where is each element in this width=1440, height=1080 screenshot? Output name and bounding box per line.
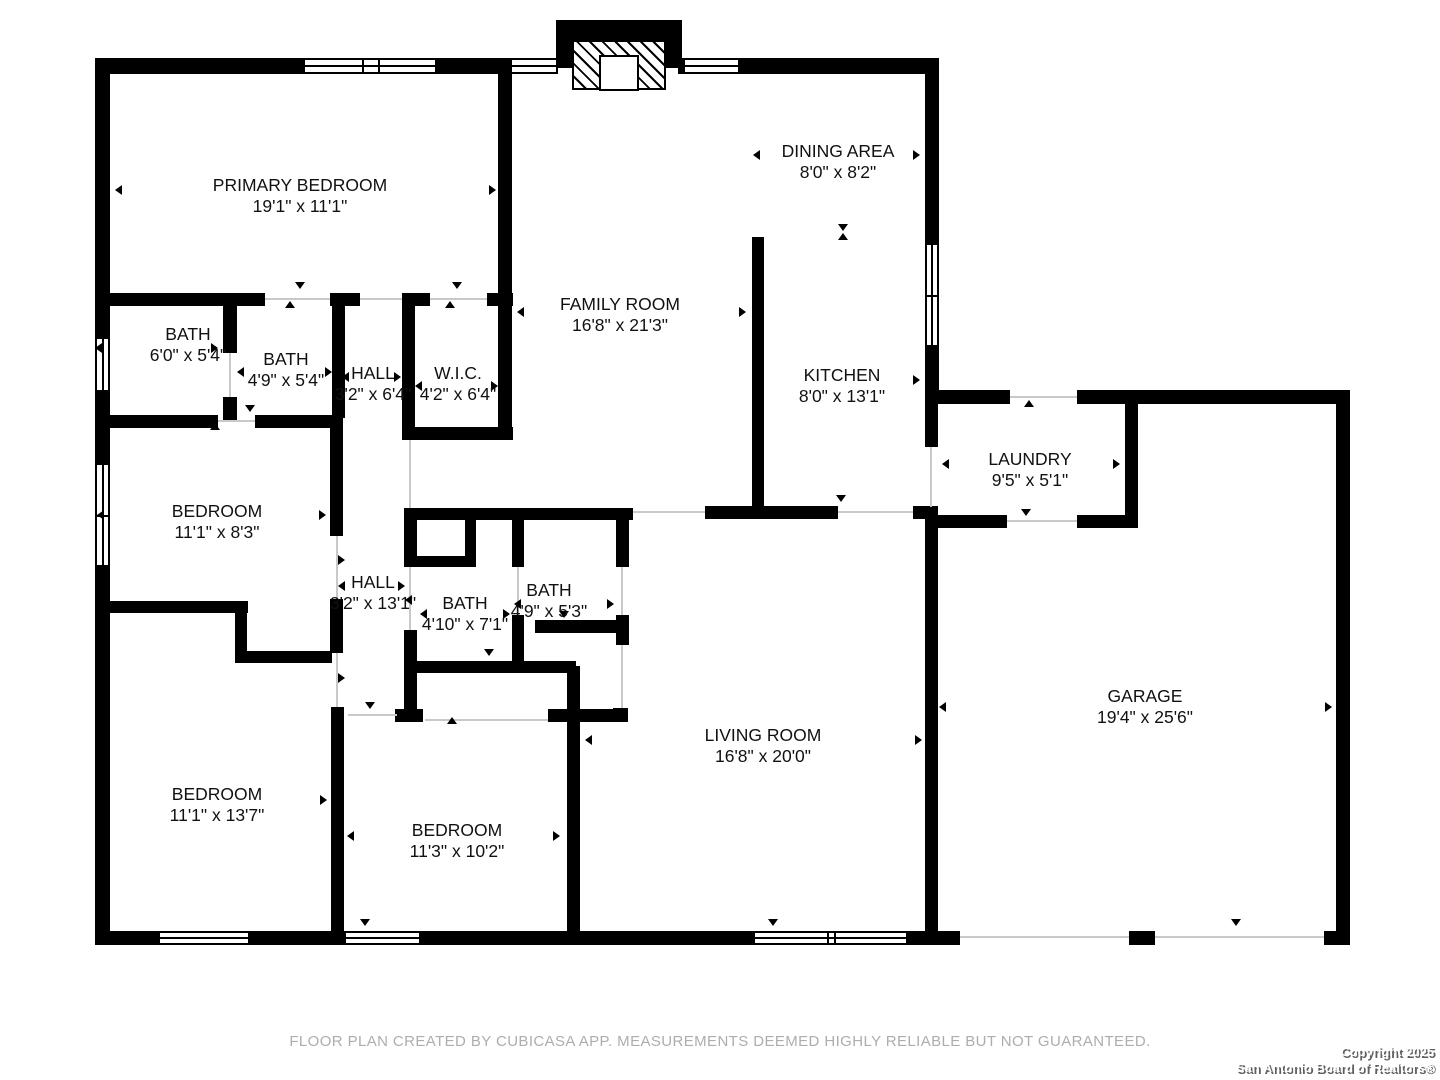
room-label-bath-2: BATH4'9" x 5'4" <box>248 349 325 391</box>
opening-marker <box>365 702 375 709</box>
room-name: LIVING ROOM <box>705 725 822 746</box>
room-label-hall: HALL3'2" x 6'4" <box>335 363 412 405</box>
window-center-line <box>685 65 738 67</box>
room-dimensions: 4'10" x 7'1" <box>422 614 508 635</box>
opening-marker <box>836 495 846 502</box>
opening-marker <box>285 301 295 308</box>
opening-marker <box>913 150 920 160</box>
door-opening <box>348 714 397 716</box>
wall <box>512 520 524 567</box>
room-label-bedroom-3: BEDROOM11'1" x 13'7" <box>170 784 265 826</box>
window-mullion <box>378 60 380 72</box>
wall <box>567 666 580 933</box>
window <box>683 58 740 74</box>
room-name: LAUNDRY <box>988 449 1071 470</box>
copyright-line-2: San Antonio Board of Realtors® <box>1236 1060 1434 1076</box>
room-dimensions: 11'1" x 8'3" <box>172 522 262 543</box>
room-label-garage: GARAGE19'4" x 25'6" <box>1097 686 1193 728</box>
door-opening <box>360 298 402 300</box>
door-opening <box>838 511 913 513</box>
wall <box>404 661 576 673</box>
window <box>510 58 558 74</box>
wall <box>404 508 633 520</box>
wall <box>548 709 628 722</box>
opening-marker <box>115 185 122 195</box>
wall <box>330 293 360 306</box>
opening-marker <box>1021 509 1031 516</box>
opening-marker <box>320 795 327 805</box>
floor-plan: PRIMARY BEDROOM19'1" x 11'1"BATH6'0" x 5… <box>0 0 1440 1080</box>
window <box>344 931 421 945</box>
door-opening <box>229 353 231 397</box>
opening-marker <box>347 831 354 841</box>
wall <box>402 293 430 306</box>
wall <box>616 615 629 645</box>
window <box>753 931 908 945</box>
wall <box>404 556 476 567</box>
door-opening <box>430 298 487 300</box>
window-center-line <box>305 65 435 67</box>
opening-marker <box>338 555 345 565</box>
door-opening <box>265 298 330 300</box>
room-name: BATH <box>248 349 325 370</box>
room-name: BEDROOM <box>410 820 505 841</box>
room-dimensions: 3'2" x 13'1" <box>330 593 416 614</box>
room-dimensions: 8'0" x 8'2" <box>782 162 895 183</box>
room-label-dining-area: DINING AREA8'0" x 8'2" <box>782 141 895 183</box>
room-label-bedroom: BEDROOM11'1" x 8'3" <box>172 501 262 543</box>
opening-marker <box>97 510 104 520</box>
room-dimensions: 4'9" x 5'4" <box>248 370 325 391</box>
room-label-kitchen: KITCHEN8'0" x 13'1" <box>799 365 885 407</box>
room-label-bedroom-2: BEDROOM11'3" x 10'2" <box>410 820 505 862</box>
wall <box>331 707 344 933</box>
opening-marker <box>325 367 332 377</box>
opening-marker <box>338 673 345 683</box>
opening-marker <box>739 307 746 317</box>
room-name: BEDROOM <box>170 784 265 805</box>
opening-marker <box>489 185 496 195</box>
wall <box>223 397 237 420</box>
room-name: BATH <box>511 580 588 601</box>
door-opening <box>1155 936 1324 938</box>
opening-marker <box>753 150 760 160</box>
opening-marker <box>1325 702 1332 712</box>
room-dimensions: 11'1" x 13'7" <box>170 805 265 826</box>
wall <box>1077 390 1350 404</box>
room-name: BEDROOM <box>172 501 262 522</box>
wall <box>95 293 265 306</box>
wall <box>616 508 629 567</box>
opening-marker <box>245 405 255 412</box>
opening-marker <box>517 307 524 317</box>
room-name: GARAGE <box>1097 686 1193 707</box>
wall <box>925 515 1007 528</box>
wall <box>1129 931 1155 945</box>
room-label-w-i-c: W.I.C.4'2" x 6'4" <box>420 363 497 405</box>
opening-marker <box>1228 396 1238 403</box>
door-opening <box>425 719 548 721</box>
door-opening <box>409 440 411 508</box>
door-opening <box>621 645 623 708</box>
room-dimensions: 16'8" x 21'3" <box>560 315 680 336</box>
opening-marker <box>237 367 244 377</box>
opening-marker <box>360 919 370 926</box>
wall <box>415 427 513 440</box>
window-mullion <box>362 60 364 72</box>
door-opening <box>960 936 1129 938</box>
wall <box>1324 931 1350 945</box>
room-name: HALL <box>335 363 412 384</box>
room-dimensions: 9'5" x 5'1" <box>988 470 1071 491</box>
room-label-bath: BATH6'0" x 5'4" <box>150 324 227 366</box>
door-opening <box>218 420 255 422</box>
room-dimensions: 8'0" x 13'1" <box>799 386 885 407</box>
opening-marker <box>755 375 762 385</box>
copyright-line-1: Copyright 2025 <box>1236 1044 1434 1060</box>
door-opening <box>930 447 932 507</box>
wall <box>498 58 512 440</box>
opening-marker <box>838 224 848 231</box>
room-dimensions: 4'2" x 6'4" <box>420 384 497 405</box>
opening-marker <box>913 375 920 385</box>
room-name: PRIMARY BEDROOM <box>213 175 387 196</box>
opening-marker <box>838 233 848 240</box>
opening-marker <box>942 459 949 469</box>
room-dimensions: 3'2" x 6'4" <box>335 384 412 405</box>
opening-marker <box>768 919 778 926</box>
door-opening <box>1010 396 1077 398</box>
room-name: DINING AREA <box>782 141 895 162</box>
window-mullion <box>834 933 836 943</box>
window <box>303 58 437 74</box>
wall <box>925 58 939 404</box>
opening-marker <box>452 282 462 289</box>
wall <box>95 415 218 428</box>
copyright-text: Copyright 2025 San Antonio Board of Real… <box>1236 1044 1434 1076</box>
opening-marker <box>447 717 457 724</box>
window <box>158 931 250 945</box>
window <box>925 243 939 347</box>
door-opening <box>633 511 705 513</box>
room-dimensions: 4'9" x 5'3" <box>511 601 588 622</box>
room-label-primary-bedroom: PRIMARY BEDROOM19'1" x 11'1" <box>213 175 387 217</box>
opening-marker <box>95 343 102 353</box>
wall <box>235 651 332 663</box>
wall <box>1077 515 1138 528</box>
opening-marker <box>1113 459 1120 469</box>
opening-marker <box>939 702 946 712</box>
opening-marker <box>553 831 560 841</box>
opening-marker <box>915 735 922 745</box>
room-dimensions: 19'1" x 11'1" <box>213 196 387 217</box>
room-name: HALL <box>330 572 416 593</box>
opening-marker <box>319 510 326 520</box>
wall <box>255 415 332 428</box>
opening-marker <box>445 301 455 308</box>
wall <box>925 390 1010 404</box>
door-opening <box>1007 520 1077 522</box>
room-name: BATH <box>422 593 508 614</box>
room-label-family-room: FAMILY ROOM16'8" x 21'3" <box>560 294 680 336</box>
opening-marker <box>1024 400 1034 407</box>
floor-plan-page: PRIMARY BEDROOM19'1" x 11'1"BATH6'0" x 5… <box>0 0 1440 1080</box>
opening-marker <box>607 599 614 609</box>
opening-marker <box>484 649 494 656</box>
window-center-line <box>512 65 556 67</box>
wall <box>925 404 938 447</box>
fireplace-firebox <box>599 55 639 91</box>
room-label-bath-3: BATH4'10" x 7'1" <box>422 593 508 635</box>
window-mullion <box>827 933 829 943</box>
disclaimer-text: FLOOR PLAN CREATED BY CUBICASA APP. MEAS… <box>289 1033 1150 1050</box>
window-center-line <box>346 937 419 939</box>
room-name: BATH <box>150 324 227 345</box>
window-center-line <box>755 937 906 939</box>
opening-marker <box>765 512 775 519</box>
window-center-line <box>160 937 248 939</box>
opening-marker <box>585 735 592 745</box>
wall <box>102 601 248 613</box>
room-label-hall-2: HALL3'2" x 13'1" <box>330 572 416 614</box>
room-dimensions: 16'8" x 20'0" <box>705 746 822 767</box>
door-opening <box>621 567 623 615</box>
room-dimensions: 6'0" x 5'4" <box>150 345 227 366</box>
room-name: KITCHEN <box>799 365 885 386</box>
opening-marker <box>838 61 848 68</box>
wall <box>395 709 423 722</box>
wall <box>1336 390 1350 945</box>
wall <box>330 415 343 536</box>
room-label-bath-4: BATH4'9" x 5'3" <box>511 580 588 622</box>
wall <box>1125 404 1138 515</box>
room-name: FAMILY ROOM <box>560 294 680 315</box>
room-label-living-room: LIVING ROOM16'8" x 20'0" <box>705 725 822 767</box>
opening-marker <box>295 282 305 289</box>
room-label-laundry: LAUNDRY9'5" x 5'1" <box>988 449 1071 491</box>
room-dimensions: 19'4" x 25'6" <box>1097 707 1193 728</box>
opening-marker <box>1231 919 1241 926</box>
opening-marker <box>210 423 220 430</box>
window-mullion <box>927 295 937 297</box>
opening-marker <box>97 795 104 805</box>
room-dimensions: 11'3" x 10'2" <box>410 841 505 862</box>
wall <box>925 507 938 933</box>
room-name: W.I.C. <box>420 363 497 384</box>
